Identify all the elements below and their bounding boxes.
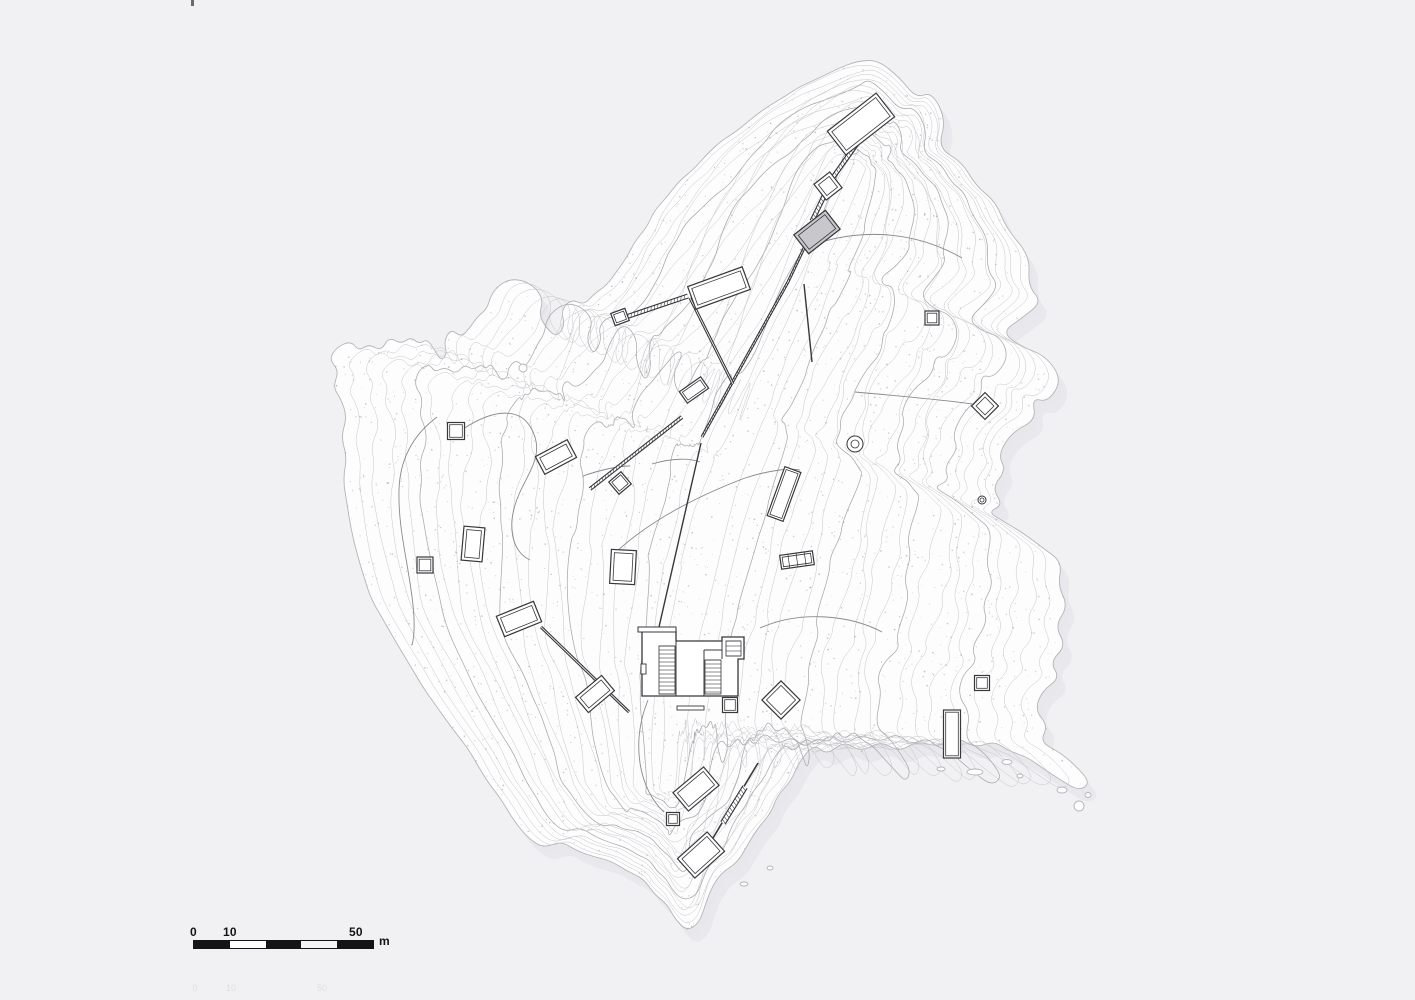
islet xyxy=(937,767,945,771)
ghost-label: 50 xyxy=(317,983,327,993)
scale-label-50: 50 xyxy=(349,926,363,938)
ghost-label: 0 xyxy=(192,983,197,993)
top-edge-mark xyxy=(191,0,194,6)
rect-f xyxy=(610,549,637,584)
scale-label-10: 10 xyxy=(223,926,237,938)
islet xyxy=(767,866,773,870)
islet xyxy=(967,769,983,775)
rect-c xyxy=(461,526,485,562)
ghost-labels: 01050 xyxy=(192,983,327,993)
scale-bar: 0 10 50 m xyxy=(193,926,413,952)
building-top-bar xyxy=(638,627,676,632)
square-a xyxy=(448,423,465,440)
ghost-label: 10 xyxy=(226,983,236,993)
square-f xyxy=(975,676,990,691)
scale-label-0: 0 xyxy=(190,926,197,938)
scale-segment xyxy=(301,941,337,948)
square-b xyxy=(417,557,433,573)
rect-i xyxy=(944,710,961,758)
building-bench xyxy=(677,706,704,710)
islet xyxy=(1085,793,1091,798)
scale-unit-label: m xyxy=(379,934,390,948)
islet-ring xyxy=(519,364,527,372)
site-plan-canvas: 01050 xyxy=(0,0,1415,1000)
well-circle xyxy=(847,436,863,452)
square-e xyxy=(925,311,939,325)
small-circle xyxy=(978,496,986,504)
small-square-c xyxy=(667,813,680,826)
square-d xyxy=(723,698,738,713)
islet xyxy=(1074,801,1084,811)
scale-segment xyxy=(337,941,373,948)
islet xyxy=(1057,787,1067,793)
islet xyxy=(740,882,748,886)
site-plan: 01050 0 10 50 m xyxy=(0,0,1415,1000)
scale-segment xyxy=(230,941,266,948)
scale-segment xyxy=(194,941,230,948)
islet xyxy=(1002,760,1012,765)
scale-bar-segments xyxy=(193,940,374,949)
islet xyxy=(1017,774,1023,778)
building-door xyxy=(641,664,646,674)
scale-segment xyxy=(266,941,302,948)
